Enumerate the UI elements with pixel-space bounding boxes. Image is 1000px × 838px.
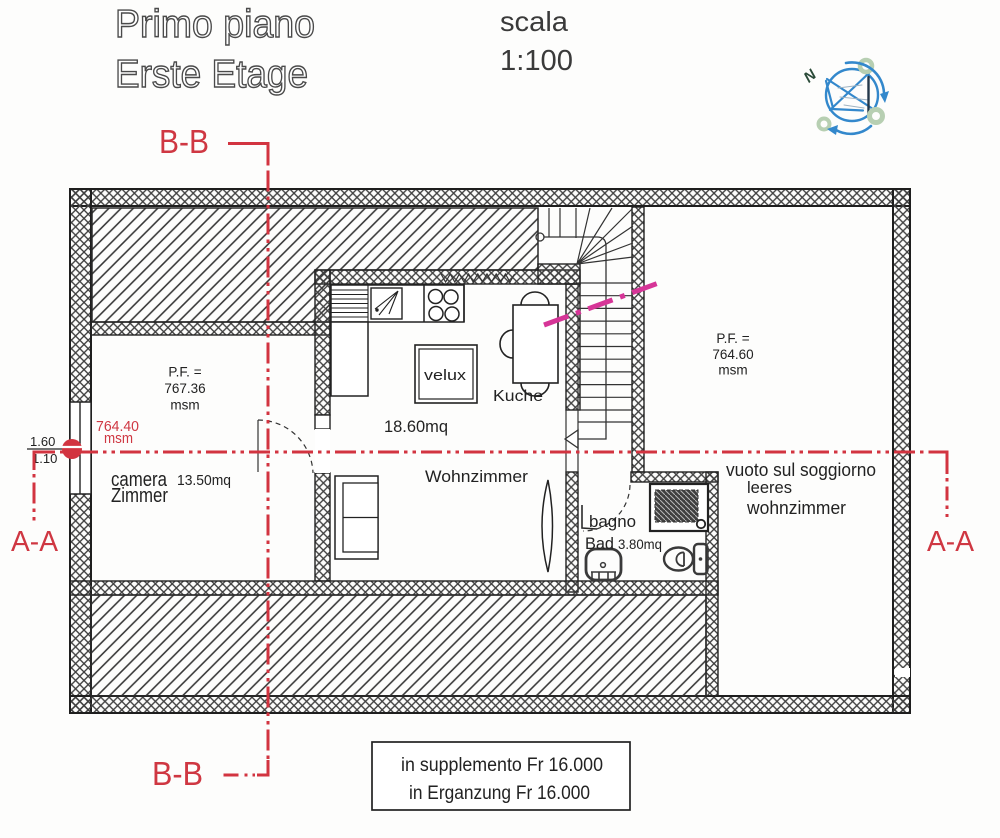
svg-text:767.36: 767.36 [164, 381, 205, 396]
svg-text:Primo piano: Primo piano [115, 3, 315, 46]
svg-text:scala: scala [500, 6, 568, 37]
svg-text:B-B: B-B [159, 123, 209, 160]
svg-text:P.F. =: P.F. = [716, 331, 749, 346]
svg-text:wohnzimmer: wohnzimmer [746, 498, 846, 518]
svg-text:msm: msm [718, 363, 747, 378]
svg-text:msm: msm [104, 431, 133, 447]
svg-text:1.60: 1.60 [30, 434, 55, 449]
svg-text:A-A: A-A [927, 526, 975, 558]
svg-text:18.60mq: 18.60mq [384, 418, 448, 436]
svg-text:764.60: 764.60 [712, 347, 753, 362]
svg-text:in supplemento Fr 16.000: in supplemento Fr 16.000 [401, 755, 603, 776]
svg-text:Zimmer: Zimmer [111, 485, 168, 507]
svg-text:Erste Etage: Erste Etage [115, 53, 308, 96]
svg-text:leeres: leeres [747, 478, 792, 497]
svg-text:13.50mq: 13.50mq [177, 472, 231, 489]
svg-text:bagno: bagno [589, 512, 636, 531]
svg-text:Kuche: Kuche [493, 388, 543, 405]
svg-text:A-A: A-A [11, 526, 59, 558]
svg-text:msm: msm [170, 398, 199, 413]
svg-text:Bad: Bad [585, 534, 614, 553]
svg-text:P.F. =: P.F. = [168, 365, 201, 380]
svg-text:in Erganzung Fr 16.000: in Erganzung Fr 16.000 [409, 783, 590, 804]
svg-text:Wohnzimmer: Wohnzimmer [425, 468, 529, 486]
svg-text:3.80mq: 3.80mq [618, 536, 662, 552]
svg-text:vuoto sul soggiorno: vuoto sul soggiorno [726, 460, 876, 480]
svg-text:velux: velux [424, 367, 467, 384]
svg-text:1:100: 1:100 [500, 45, 573, 77]
svg-text:N: N [801, 66, 821, 87]
svg-text:B-B: B-B [152, 755, 203, 792]
